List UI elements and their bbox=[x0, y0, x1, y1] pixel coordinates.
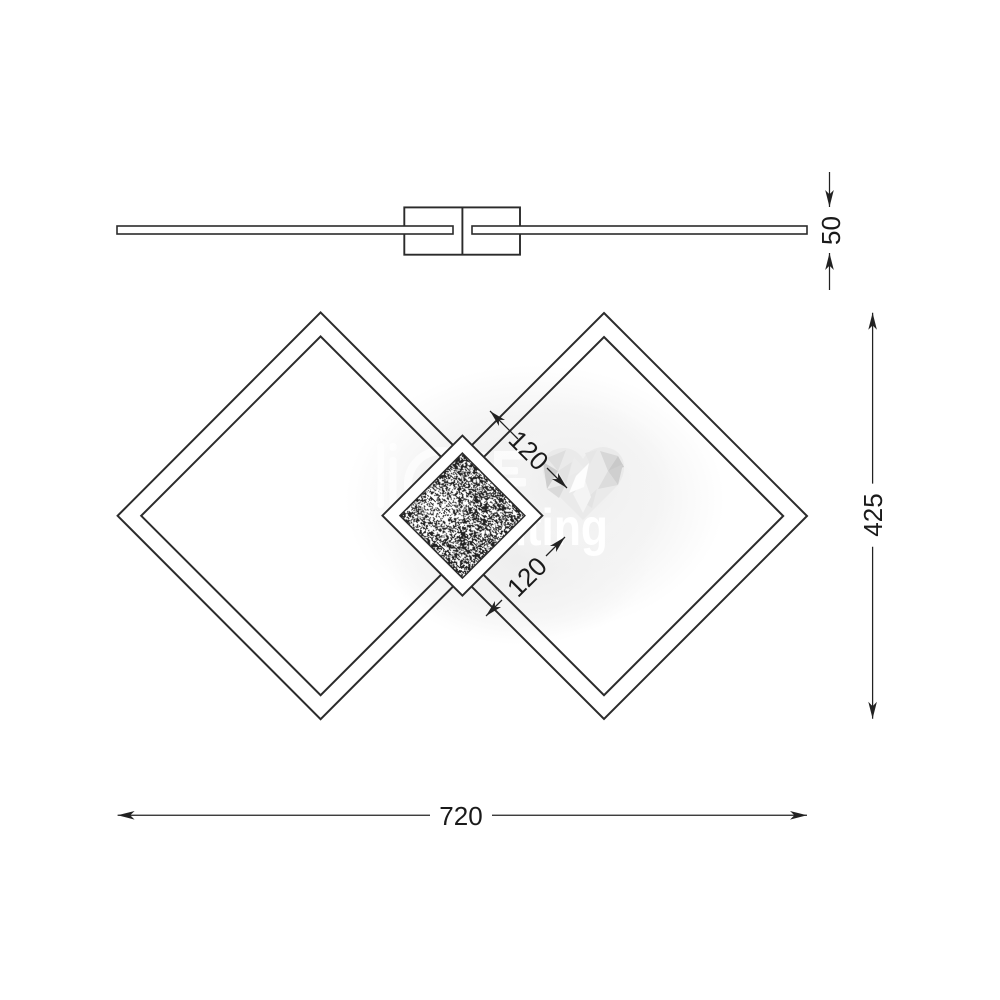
svg-text:50: 50 bbox=[816, 216, 846, 245]
svg-text:425: 425 bbox=[858, 493, 888, 536]
svg-text:720: 720 bbox=[439, 801, 482, 831]
